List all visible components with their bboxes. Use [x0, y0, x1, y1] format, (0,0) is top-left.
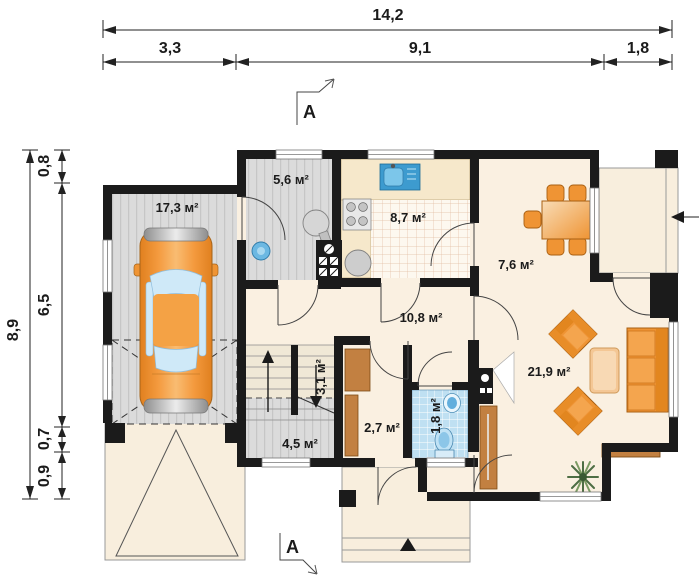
- coffee-table: [590, 348, 619, 393]
- stair-stringer-wall: [291, 345, 298, 415]
- room-label-dining: 7,6 м²: [498, 257, 534, 272]
- room-label-bathroom: 1,8 м²: [428, 398, 443, 434]
- room-label-storage: 4,5 м²: [282, 436, 318, 451]
- car-rear-window: [154, 346, 198, 372]
- section-marker-bottom: A: [280, 533, 317, 574]
- dim-left-seg-3: 0,7: [36, 428, 53, 450]
- dim-top-total: 14,2: [372, 7, 403, 24]
- entrance-porch-right: [599, 168, 699, 273]
- kitchen-stove: [343, 199, 371, 230]
- car-illustration: [134, 228, 218, 413]
- room-label-hall: 10,8 м²: [400, 310, 444, 325]
- dining-table: [542, 201, 590, 239]
- bathroom-window: [427, 458, 465, 467]
- room-label-pantry: 2,7 м²: [364, 420, 400, 435]
- kitchen-appliance-cylinder: [345, 250, 371, 276]
- kitchen-sink: [380, 164, 420, 190]
- living-window-bottom: [540, 492, 601, 501]
- floor-plan-page: 14,2 3,3 9,1 1,8 8,9 0,8 6,5 0,7 0,9 A A: [0, 0, 700, 576]
- garage-window-2: [103, 345, 112, 400]
- room-label-kitchen: 8,7 м²: [390, 210, 426, 225]
- room-label-garage: 17,3 м²: [156, 200, 200, 215]
- dining-window: [590, 188, 599, 253]
- plant: [568, 462, 598, 492]
- storage-window: [262, 458, 310, 467]
- vestibule-window: [276, 150, 322, 159]
- dim-top-seg-3: 1,8: [627, 40, 649, 57]
- section-label-bottom: A: [286, 537, 299, 557]
- room-label-living: 21,9 м²: [528, 364, 572, 379]
- dim-top-seg-2: 9,1: [409, 40, 431, 57]
- living-window-right: [669, 322, 678, 417]
- car-windshield: [150, 270, 202, 299]
- room-label-stairs: 3,1 м²: [313, 359, 328, 395]
- dim-left-seg-2: 6,5: [36, 294, 53, 316]
- bathroom-sink: [444, 394, 461, 413]
- section-label-top: A: [303, 102, 316, 122]
- section-marker-top: A: [297, 79, 334, 125]
- room-label-vestibule: 5,6 м²: [273, 172, 309, 187]
- garage-window-1: [103, 240, 112, 292]
- kitchen-window: [368, 150, 434, 159]
- dim-left-seg-1: 0,8: [36, 155, 53, 177]
- dimension-lines-top: 14,2 3,3 9,1 1,8: [103, 7, 672, 70]
- dim-left-seg-4: 0,9: [36, 465, 53, 487]
- sofa: [627, 328, 668, 412]
- driveway: [105, 423, 245, 560]
- dim-top-seg-1: 3,3: [159, 40, 181, 57]
- floor-plan-drawing: 14,2 3,3 9,1 1,8 8,9 0,8 6,5 0,7 0,9 A A: [0, 0, 700, 576]
- dim-left-total: 8,9: [5, 319, 22, 341]
- floor-drain: [252, 242, 270, 260]
- dimension-lines-left: 8,9 0,8 6,5 0,7 0,9: [5, 150, 70, 499]
